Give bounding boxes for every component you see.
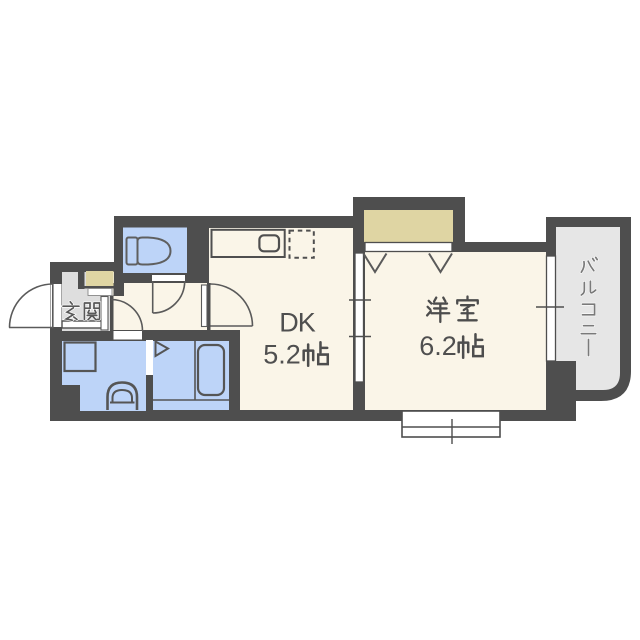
- svg-text:DK: DK: [279, 308, 315, 338]
- svg-text:5.2: 5.2: [263, 340, 301, 370]
- svg-text:6.2: 6.2: [419, 331, 457, 361]
